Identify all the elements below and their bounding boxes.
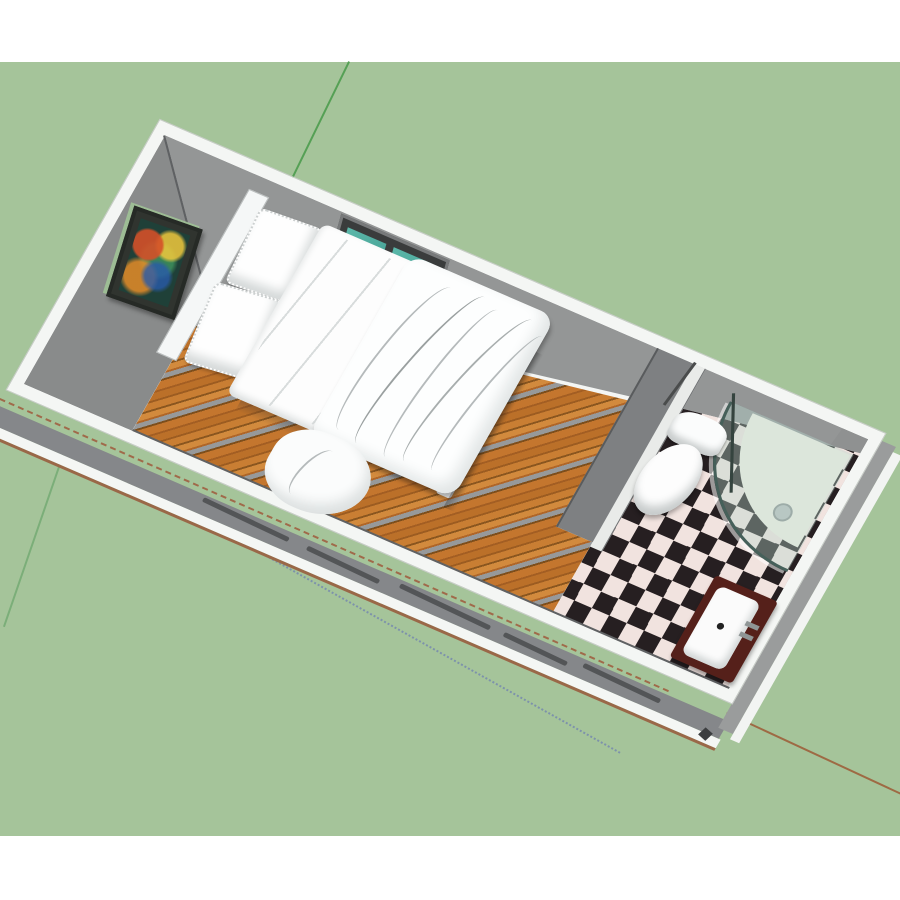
sink-faucet <box>744 621 759 631</box>
model-viewport <box>0 0 900 900</box>
abstract-art-canvas <box>118 218 190 307</box>
